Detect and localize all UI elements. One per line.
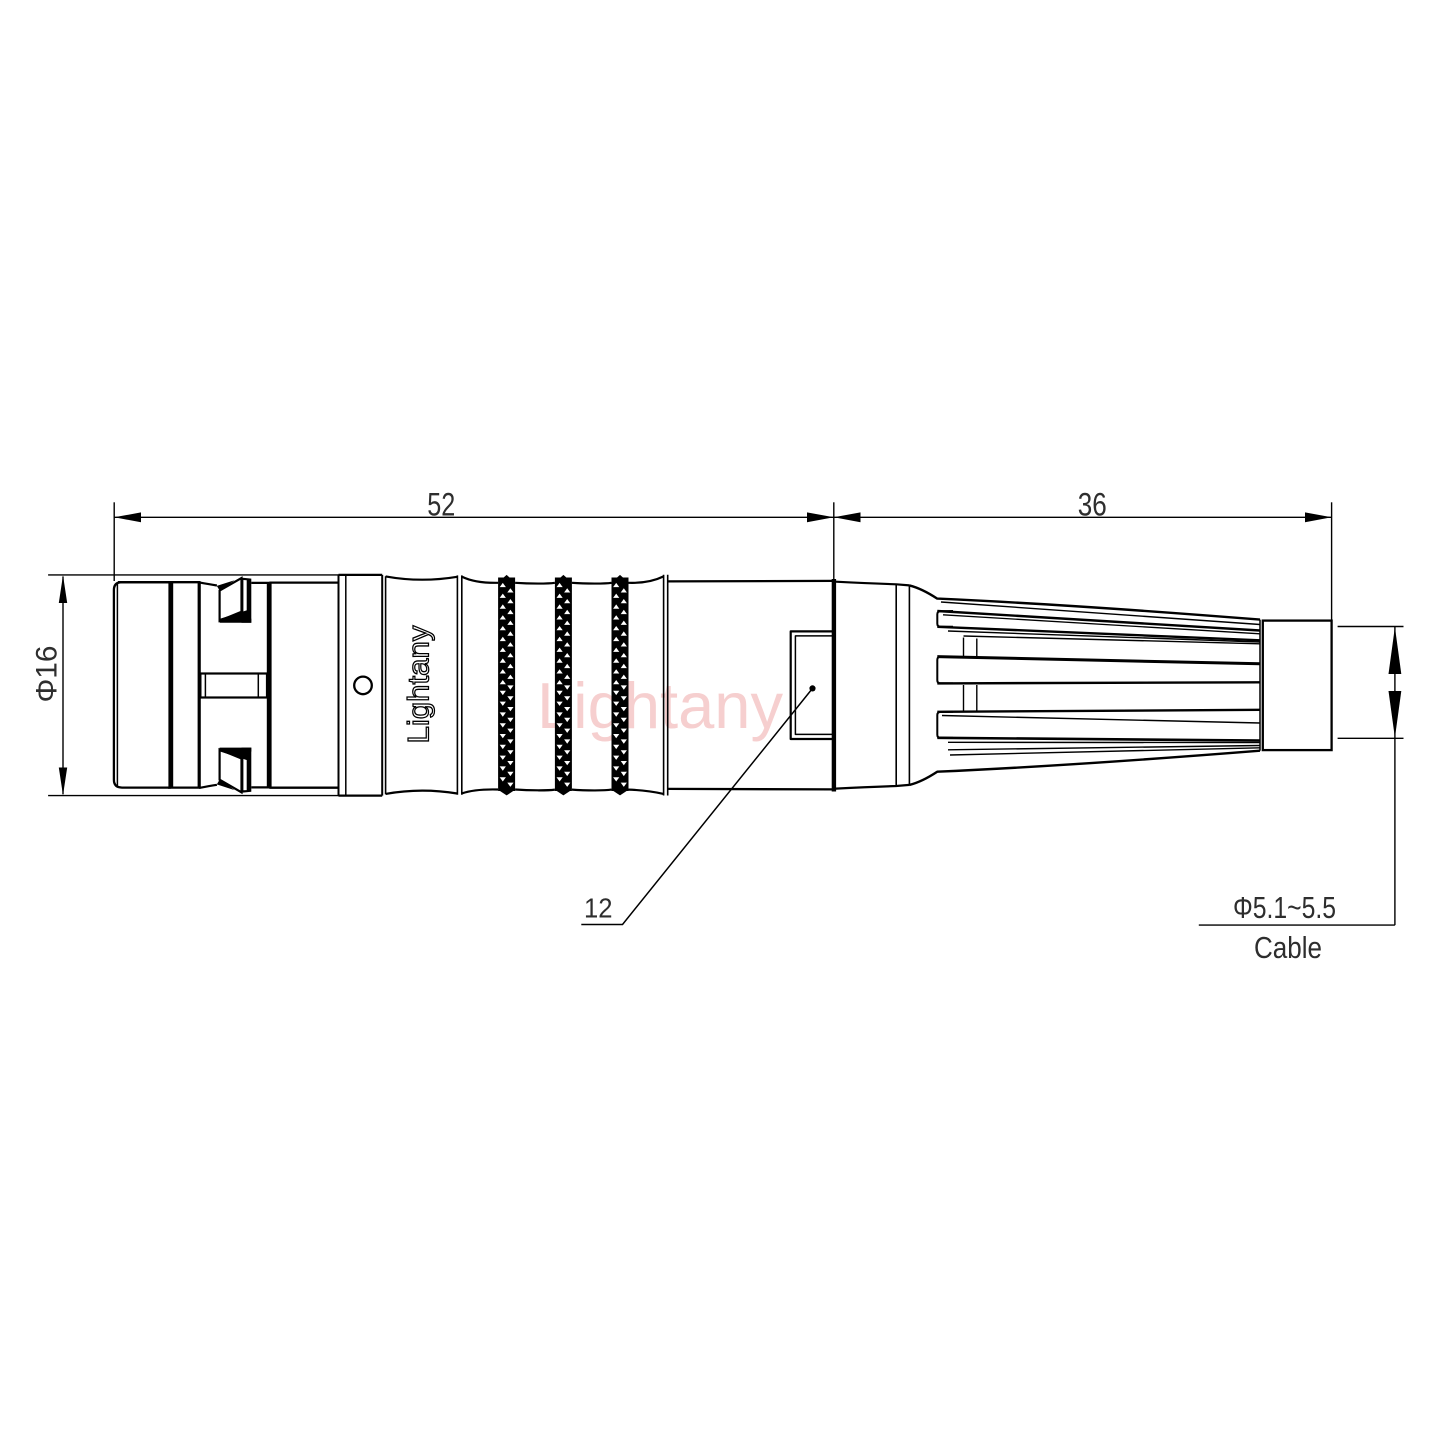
svg-text:Φ16: Φ16	[31, 646, 64, 703]
svg-text:Φ5.1~5.5: Φ5.1~5.5	[1233, 890, 1336, 925]
svg-text:Cable: Cable	[1254, 930, 1322, 965]
svg-text:12: 12	[584, 892, 613, 923]
svg-text:Lightany: Lightany	[403, 626, 436, 744]
svg-text:36: 36	[1078, 487, 1107, 523]
svg-text:Lightany: Lightany	[537, 669, 784, 742]
svg-text:52: 52	[427, 487, 455, 523]
